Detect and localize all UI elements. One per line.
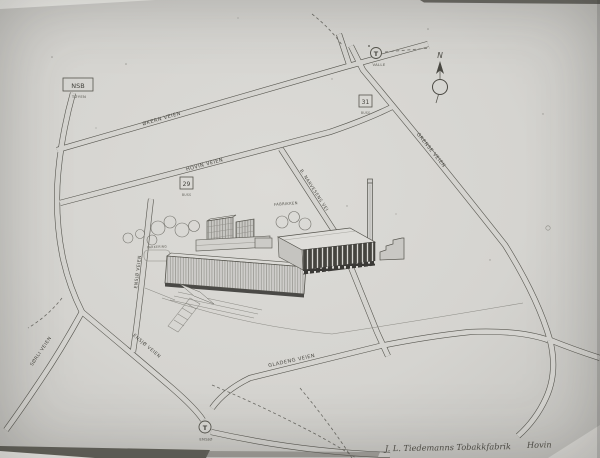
tram-stop-ensjo-name: ENSJØ: [199, 437, 212, 442]
photo-artifacts: [0, 0, 600, 458]
north-label: N: [437, 51, 443, 60]
valle-dot-icon: [368, 45, 370, 47]
connecting-block: [255, 238, 272, 248]
chimney: [368, 179, 373, 243]
nsb-station-place: TØYEN: [71, 94, 86, 99]
tram-symbol-icon: T: [203, 424, 208, 432]
road-label-narvesens-vei: B. NARVESENS VEI: [298, 168, 330, 212]
bus-stop-29-mode: BUSS: [182, 193, 191, 197]
photo-corner-topleft: [0, 0, 155, 9]
bus-stop-29-marker: 29 BUSS: [180, 177, 193, 197]
factory-buildings: [165, 179, 404, 304]
north-arrow: N: [433, 51, 448, 103]
bus-stop-31-number: 31: [362, 99, 370, 106]
factory-label: FABRIKKEN: [274, 200, 298, 207]
bus-stop-31-mode: BUSS: [361, 111, 370, 115]
tram-stop-valle-name: VALLE: [372, 62, 385, 67]
bush-icon: [546, 226, 550, 230]
photo-corner-bottomright: [548, 425, 600, 458]
road-label-hovin-veien: HOVIN VEIEN: [185, 157, 224, 173]
stepped-annex: [380, 238, 404, 260]
photo-edge-top: [420, 0, 600, 4]
caption-place: Hovin: [526, 439, 552, 449]
bus-stop-31-marker: 31 BUSS: [359, 95, 372, 115]
tram-symbol-icon: T: [374, 50, 379, 58]
site-plan-drawing: ØKERN VEIEN HOVIN VEIEN GRENSE VEIEN B. …: [0, 0, 600, 458]
road-label-grense-veien: GRENSE VEIEN: [415, 132, 447, 169]
tram-stop-ensjo-marker: T ENSJØ: [199, 421, 213, 442]
nsb-station-marker: NSB TØYEN: [63, 78, 93, 99]
bus-stop-29-number: 29: [183, 181, 191, 188]
nsb-station-name: NSB: [71, 82, 84, 90]
photo-edge-bottom-fade: [205, 451, 380, 457]
caption: J. L. Tiedemanns Tobakkfabrik Hovin: [383, 439, 552, 453]
site-plan-photo: ØKERN VEIEN HOVIN VEIEN GRENSE VEIEN B. …: [0, 0, 600, 458]
caption-title: J. L. Tiedemanns Tobakkfabrik: [383, 441, 511, 453]
parking-label: PARKERING: [147, 244, 168, 249]
